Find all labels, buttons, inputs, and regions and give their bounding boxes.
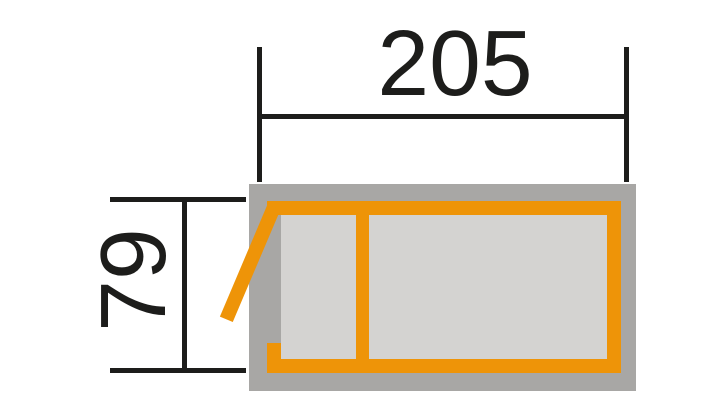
width-dimension-label: 205 [305,16,605,110]
width-dimension-tick-right [624,47,629,182]
right-compartment [369,215,607,359]
height-dimension-label: 79 [86,180,180,380]
frame-left-stub [267,343,281,373]
frame-bottom-bar [267,359,621,373]
roof-panel [249,184,636,391]
left-compartment [281,215,356,359]
frame-divider-bar [356,201,369,373]
frame-top-bar [267,201,621,215]
frame-right-bar [607,201,621,373]
open-side-bar [220,204,281,322]
width-dimension-tick-left [257,47,262,182]
dimension-drawing: 205 79 [0,0,720,405]
